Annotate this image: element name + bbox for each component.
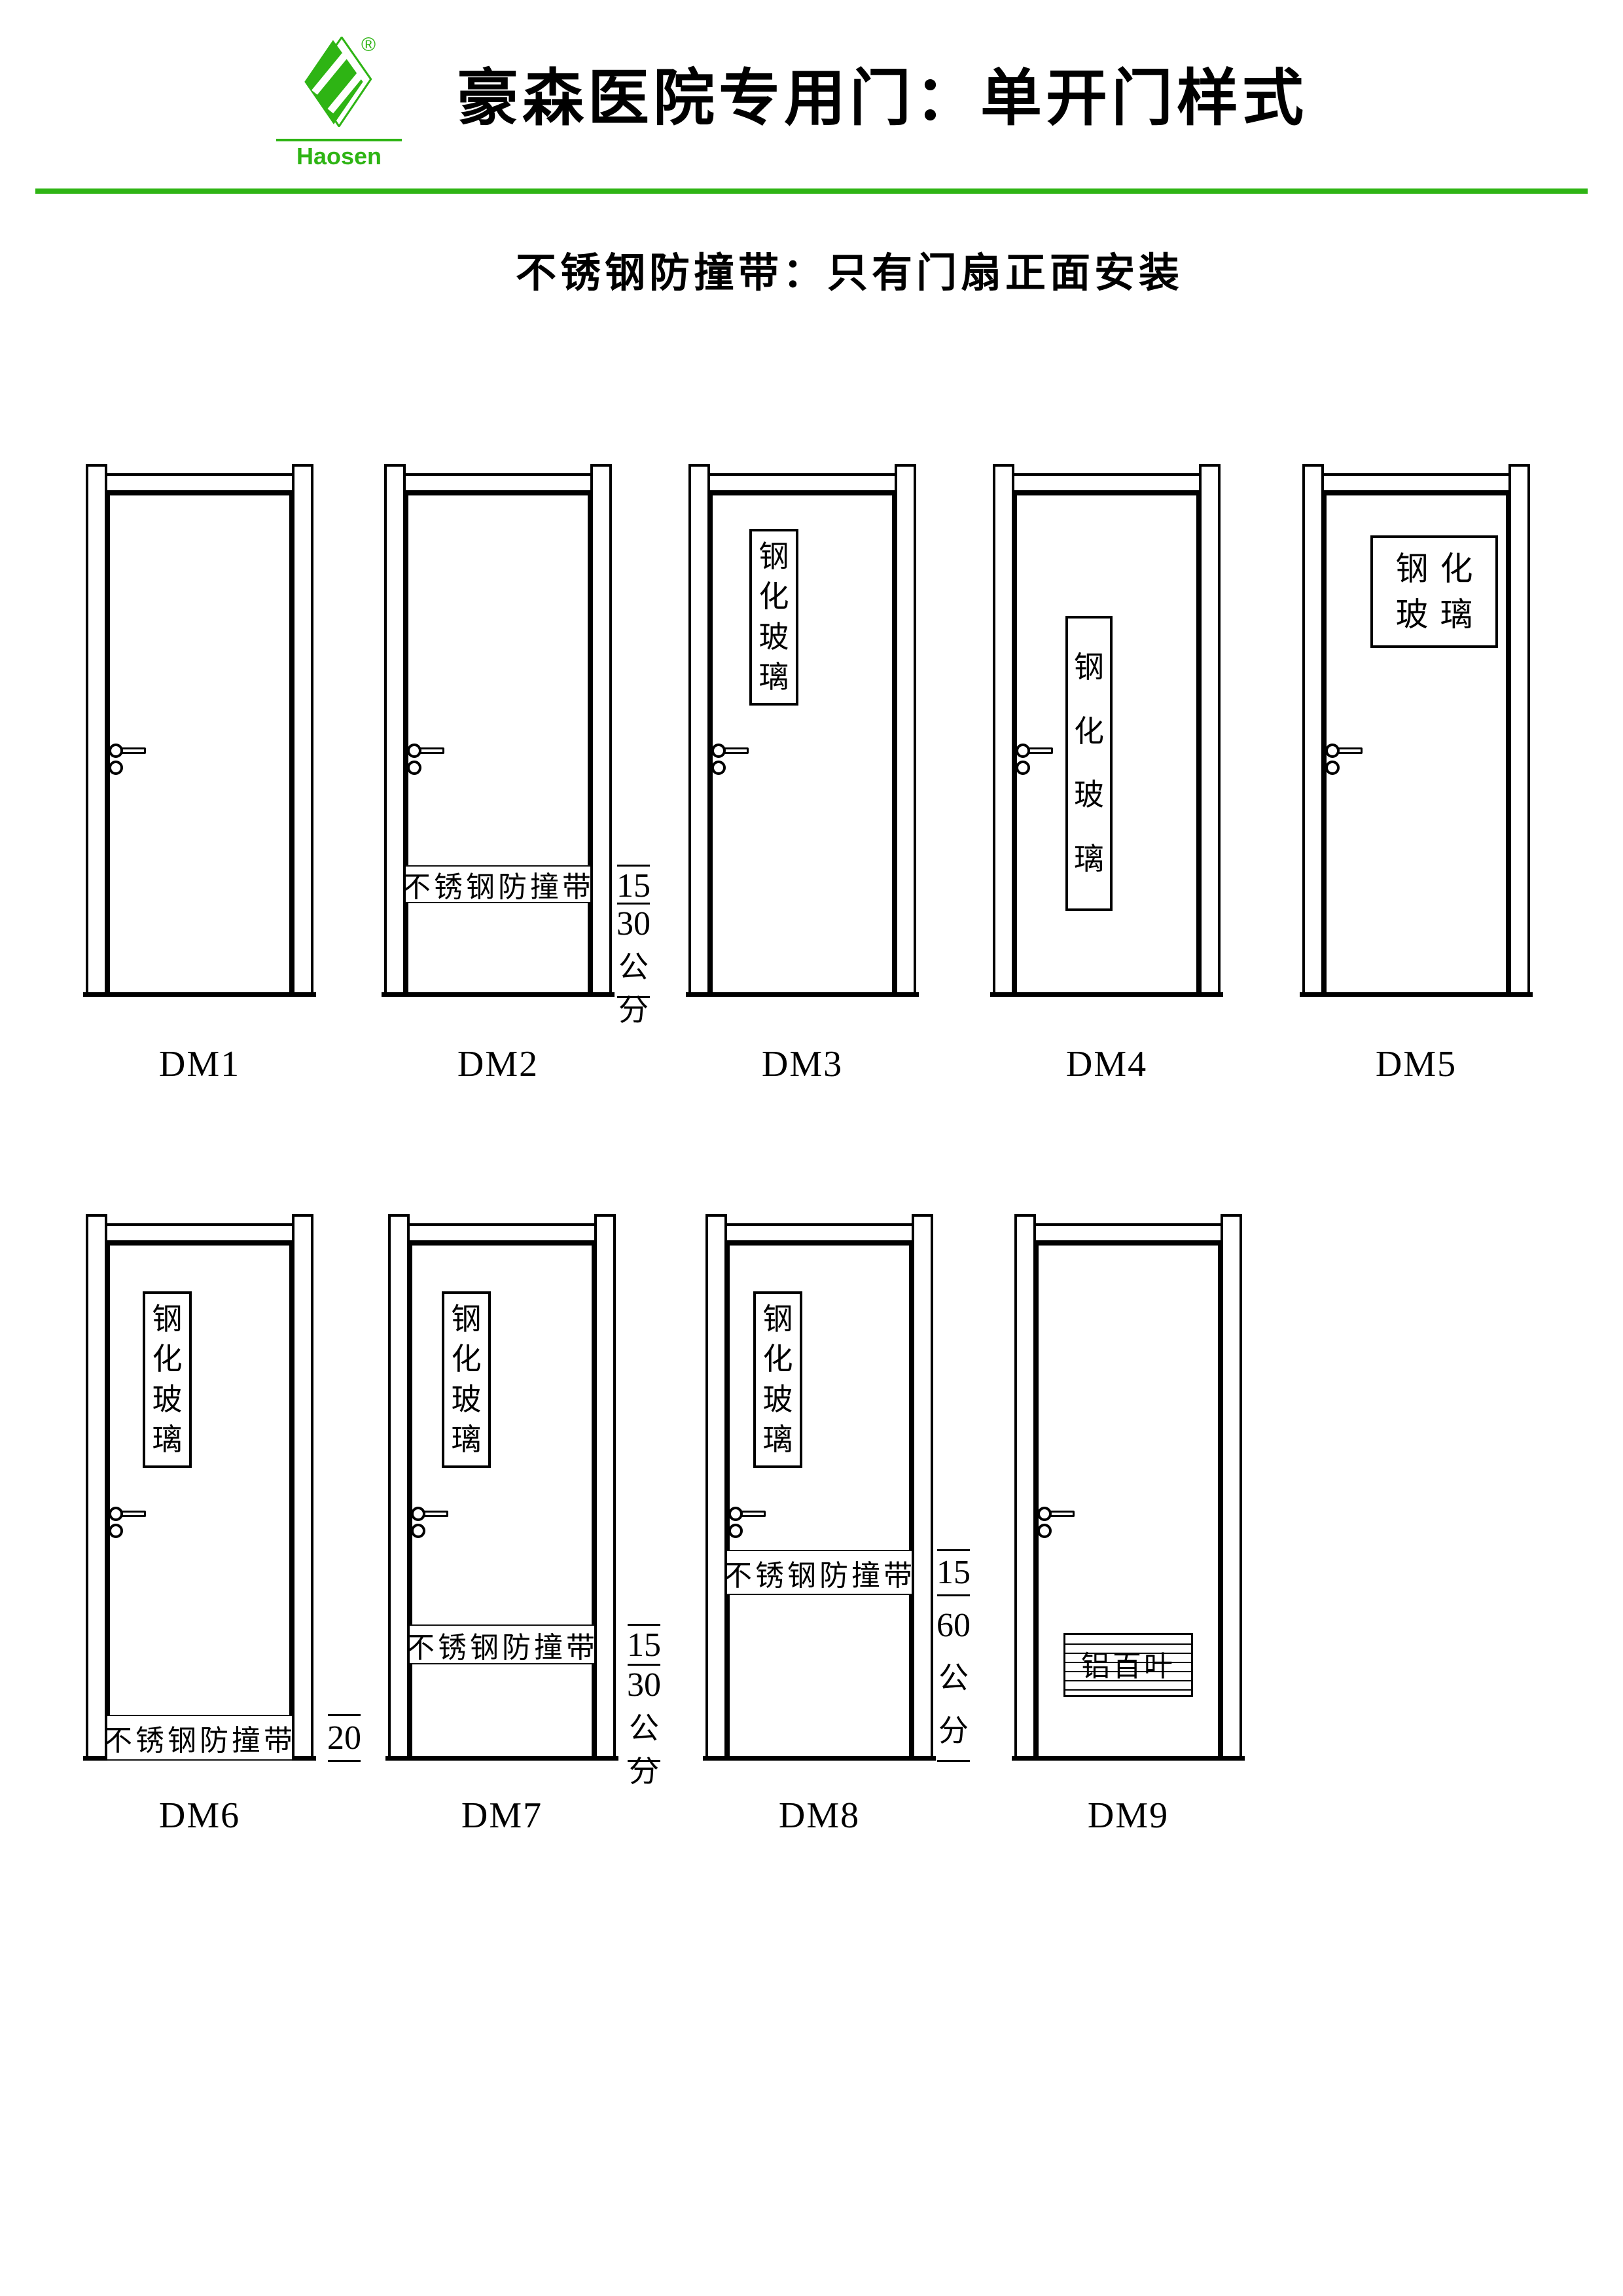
floor-line <box>1012 1756 1245 1761</box>
door-label: DM9 <box>1014 1795 1242 1837</box>
door-frame-post-left <box>384 464 406 997</box>
lock-cylinder-icon <box>109 761 123 775</box>
door-frame-post-right <box>895 464 916 997</box>
lock-cylinder-icon <box>728 1524 743 1538</box>
door-label: DM3 <box>688 1043 916 1085</box>
louver-slat <box>1065 1689 1191 1691</box>
door-frame-post-left <box>1302 464 1324 997</box>
floor-line <box>385 1756 618 1761</box>
door-frame-post-left <box>86 464 107 997</box>
lock-cylinder-icon <box>407 761 421 775</box>
door-frame-post-right <box>1508 464 1530 997</box>
door-label: DM8 <box>705 1795 933 1837</box>
handle-knob <box>1016 744 1030 758</box>
glass-label-char: 钢 <box>759 542 789 572</box>
dim-label: 30 <box>616 905 651 943</box>
lock-cylinder-icon <box>1037 1524 1052 1538</box>
door-label: DM5 <box>1302 1043 1530 1085</box>
handle-knob <box>1325 744 1340 758</box>
dim-label: 15 <box>616 867 651 905</box>
glass-label-line: 玻璃 <box>1396 598 1485 631</box>
floor-line <box>1300 992 1533 997</box>
dim-label-group: 15 <box>937 1551 970 1594</box>
door-dm4: 钢化玻璃DM4 <box>993 464 1221 997</box>
dim-label: 60 <box>936 1606 971 1645</box>
glass-label-char: 璃 <box>452 1425 482 1455</box>
handle-knob <box>109 1507 123 1521</box>
door-frame-post-left <box>86 1214 107 1761</box>
door-frame-lintel <box>1324 473 1508 493</box>
glass-label-char: 玻 <box>763 1385 793 1415</box>
door-label: DM1 <box>86 1043 313 1085</box>
door-label: DM4 <box>993 1043 1221 1085</box>
door-leaf <box>710 493 895 997</box>
door-frame-post-left <box>705 1214 727 1761</box>
handle-knob <box>1037 1507 1052 1521</box>
tempered-glass-panel: 钢化玻璃 <box>143 1291 192 1468</box>
dim-label: 公 <box>629 1704 659 1748</box>
crash-band: 不锈钢防撞带 <box>406 865 590 903</box>
door-leaf <box>410 1243 594 1761</box>
door-frame-post-left <box>688 464 710 997</box>
door-dm3: 钢化玻璃DM3 <box>688 464 916 997</box>
dim-label: 分 <box>618 986 649 1030</box>
crash-band: 不锈钢防撞带 <box>410 1624 594 1664</box>
dim-label: 20 <box>327 1719 361 1757</box>
louver-label: 铝百叶 <box>1065 1642 1191 1684</box>
door-leaf <box>107 493 292 997</box>
door-dm2: 不锈钢防撞带1530公分DM2 <box>384 464 612 997</box>
handle-knob <box>109 744 123 758</box>
floor-line <box>382 992 615 997</box>
dim-label: 公 <box>938 1654 969 1697</box>
door-frame-post-right <box>292 464 313 997</box>
door-frame-post-right <box>594 1214 616 1761</box>
dim-tick <box>328 1760 361 1762</box>
door-dm9: 铝百叶DM9 <box>1014 1214 1242 1761</box>
glass-label-char: 化 <box>452 1344 482 1374</box>
glass-label-char: 化 <box>152 1344 183 1374</box>
dim-label-group: 30公分 <box>617 905 650 996</box>
dim-label-group: 15 <box>617 867 650 902</box>
glass-label-line: 钢化 <box>1396 552 1485 585</box>
glass-label-char: 化 <box>763 1344 793 1374</box>
glass-label-char: 钢 <box>763 1304 793 1335</box>
dim-label-group: 20 <box>328 1716 361 1759</box>
crash-band-label: 不锈钢防撞带 <box>402 863 594 905</box>
glass-label-char: 璃 <box>763 1425 793 1455</box>
lock-cylinder-icon <box>711 761 726 775</box>
crash-band-label: 不锈钢防撞带 <box>406 1624 598 1666</box>
handle-knob <box>407 744 421 758</box>
door-label: DM2 <box>384 1043 612 1085</box>
handle-knob <box>711 744 726 758</box>
door-label: DM7 <box>388 1795 616 1837</box>
glass-label-char: 玻 <box>1074 780 1104 810</box>
dim-tick <box>937 1760 970 1762</box>
floor-line <box>686 992 919 997</box>
crash-band: 不锈钢防撞带 <box>107 1715 292 1761</box>
glass-label-char: 玻 <box>759 622 789 653</box>
floor-line <box>703 1756 936 1761</box>
door-frame-post-right <box>912 1214 933 1761</box>
handle-knob <box>728 1507 743 1521</box>
glass-label-char: 钢 <box>452 1304 482 1335</box>
handle-knob <box>411 1507 425 1521</box>
crash-band: 不锈钢防撞带 <box>727 1550 912 1595</box>
tempered-glass-panel: 钢化玻璃 <box>753 1291 802 1468</box>
glass-label-char: 玻 <box>152 1385 183 1415</box>
door-dm8: 钢化玻璃不锈钢防撞带1560公分DM8 <box>705 1214 933 1761</box>
dim-label: 分 <box>629 1748 659 1791</box>
door-dm5: 钢化玻璃DM5 <box>1302 464 1530 997</box>
door-frame-post-right <box>590 464 612 997</box>
floor-line <box>83 992 316 997</box>
door-frame-post-right <box>1221 1214 1242 1761</box>
glass-label-char: 璃 <box>759 662 789 692</box>
glass-label-char: 璃 <box>1074 844 1104 874</box>
lock-cylinder-icon <box>109 1524 123 1538</box>
door-frame-lintel <box>107 1223 292 1243</box>
door-frame-lintel <box>1014 473 1199 493</box>
glass-label-char: 璃 <box>152 1425 183 1455</box>
door-dm7: 钢化玻璃不锈钢防撞带1530公分DM7 <box>388 1214 616 1761</box>
door-frame-post-left <box>1014 1214 1036 1761</box>
dim-label-group: 30公分 <box>628 1666 660 1759</box>
door-frame-lintel <box>710 473 895 493</box>
door-leaf <box>107 1243 292 1761</box>
door-frame-post-right <box>292 1214 313 1761</box>
door-frame-post-left <box>388 1214 410 1761</box>
floor-line <box>990 992 1223 997</box>
crash-band-label: 不锈钢防撞带 <box>723 1552 916 1594</box>
glass-label-char: 钢 <box>1074 653 1104 683</box>
louver-panel: 铝百叶 <box>1063 1633 1193 1697</box>
door-label: DM6 <box>86 1795 313 1837</box>
door-frame-lintel <box>107 473 292 493</box>
door-frame-post-right <box>1199 464 1221 997</box>
glass-label-char: 化 <box>1074 717 1104 747</box>
dim-label-group: 60公分 <box>937 1596 970 1759</box>
diagram-layer: DM1不锈钢防撞带1530公分DM2钢化玻璃DM3钢化玻璃DM4钢化玻璃DM5钢… <box>0 0 1623 2296</box>
dim-label: 30 <box>627 1666 661 1704</box>
dim-label: 公 <box>618 943 649 986</box>
tempered-glass-panel: 钢化玻璃 <box>1370 535 1498 648</box>
door-leaf <box>406 493 590 997</box>
dim-label: 15 <box>936 1553 971 1592</box>
dim-label: 15 <box>627 1626 661 1664</box>
crash-band-label: 不锈钢防撞带 <box>103 1717 296 1759</box>
tempered-glass-panel: 钢化玻璃 <box>442 1291 491 1468</box>
lock-cylinder-icon <box>1325 761 1340 775</box>
glass-label-char: 钢 <box>152 1304 183 1335</box>
tempered-glass-panel: 钢化玻璃 <box>749 529 798 706</box>
door-frame-lintel <box>410 1223 594 1243</box>
lock-cylinder-icon <box>411 1524 425 1538</box>
glass-label-char: 化 <box>759 582 789 612</box>
door-dm1: DM1 <box>86 464 313 997</box>
lock-cylinder-icon <box>1016 761 1030 775</box>
glass-label-char: 玻 <box>452 1385 482 1415</box>
tempered-glass-panel: 钢化玻璃 <box>1065 616 1113 911</box>
door-frame-lintel <box>727 1223 912 1243</box>
dim-label-group: 15 <box>628 1626 660 1663</box>
door-frame-post-left <box>993 464 1014 997</box>
door-dm6: 钢化玻璃不锈钢防撞带20DM6 <box>86 1214 313 1761</box>
dim-label: 分 <box>938 1707 969 1750</box>
door-frame-lintel <box>406 473 590 493</box>
door-frame-lintel <box>1036 1223 1221 1243</box>
